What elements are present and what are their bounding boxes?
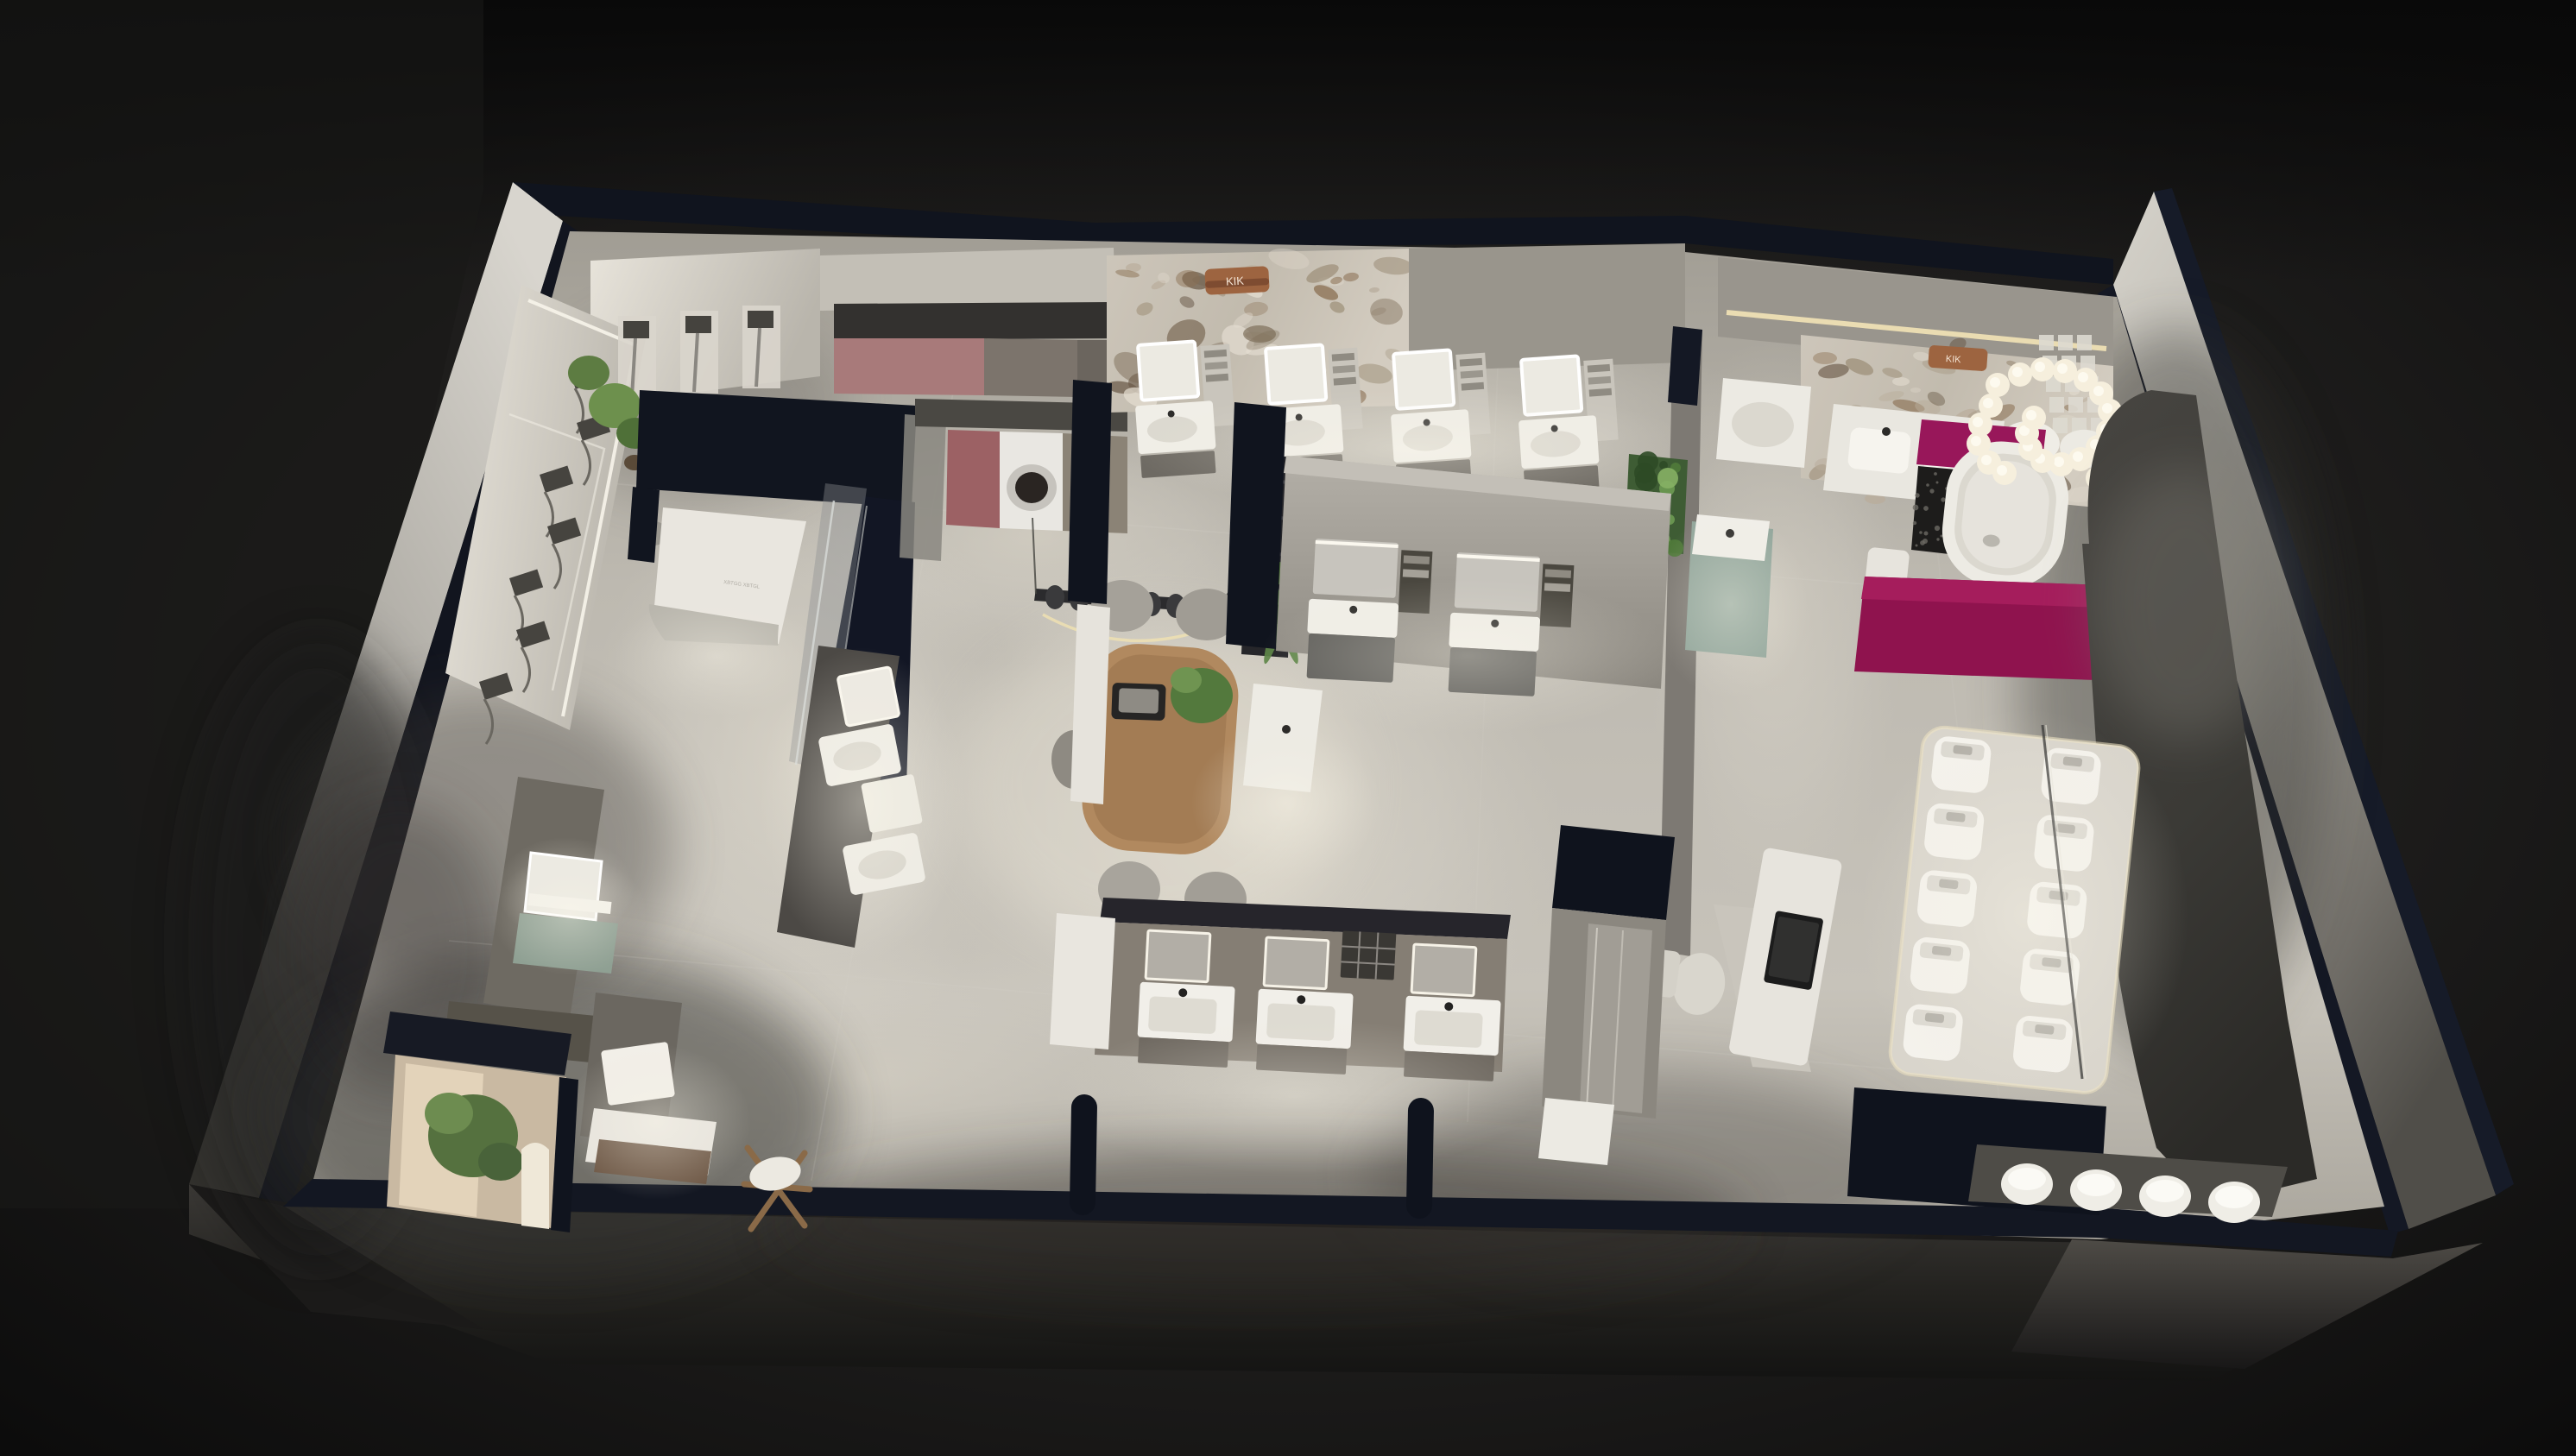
svg-text:KIK: KIK [1226, 274, 1245, 288]
svg-text:KIK: KIK [1945, 354, 1961, 365]
